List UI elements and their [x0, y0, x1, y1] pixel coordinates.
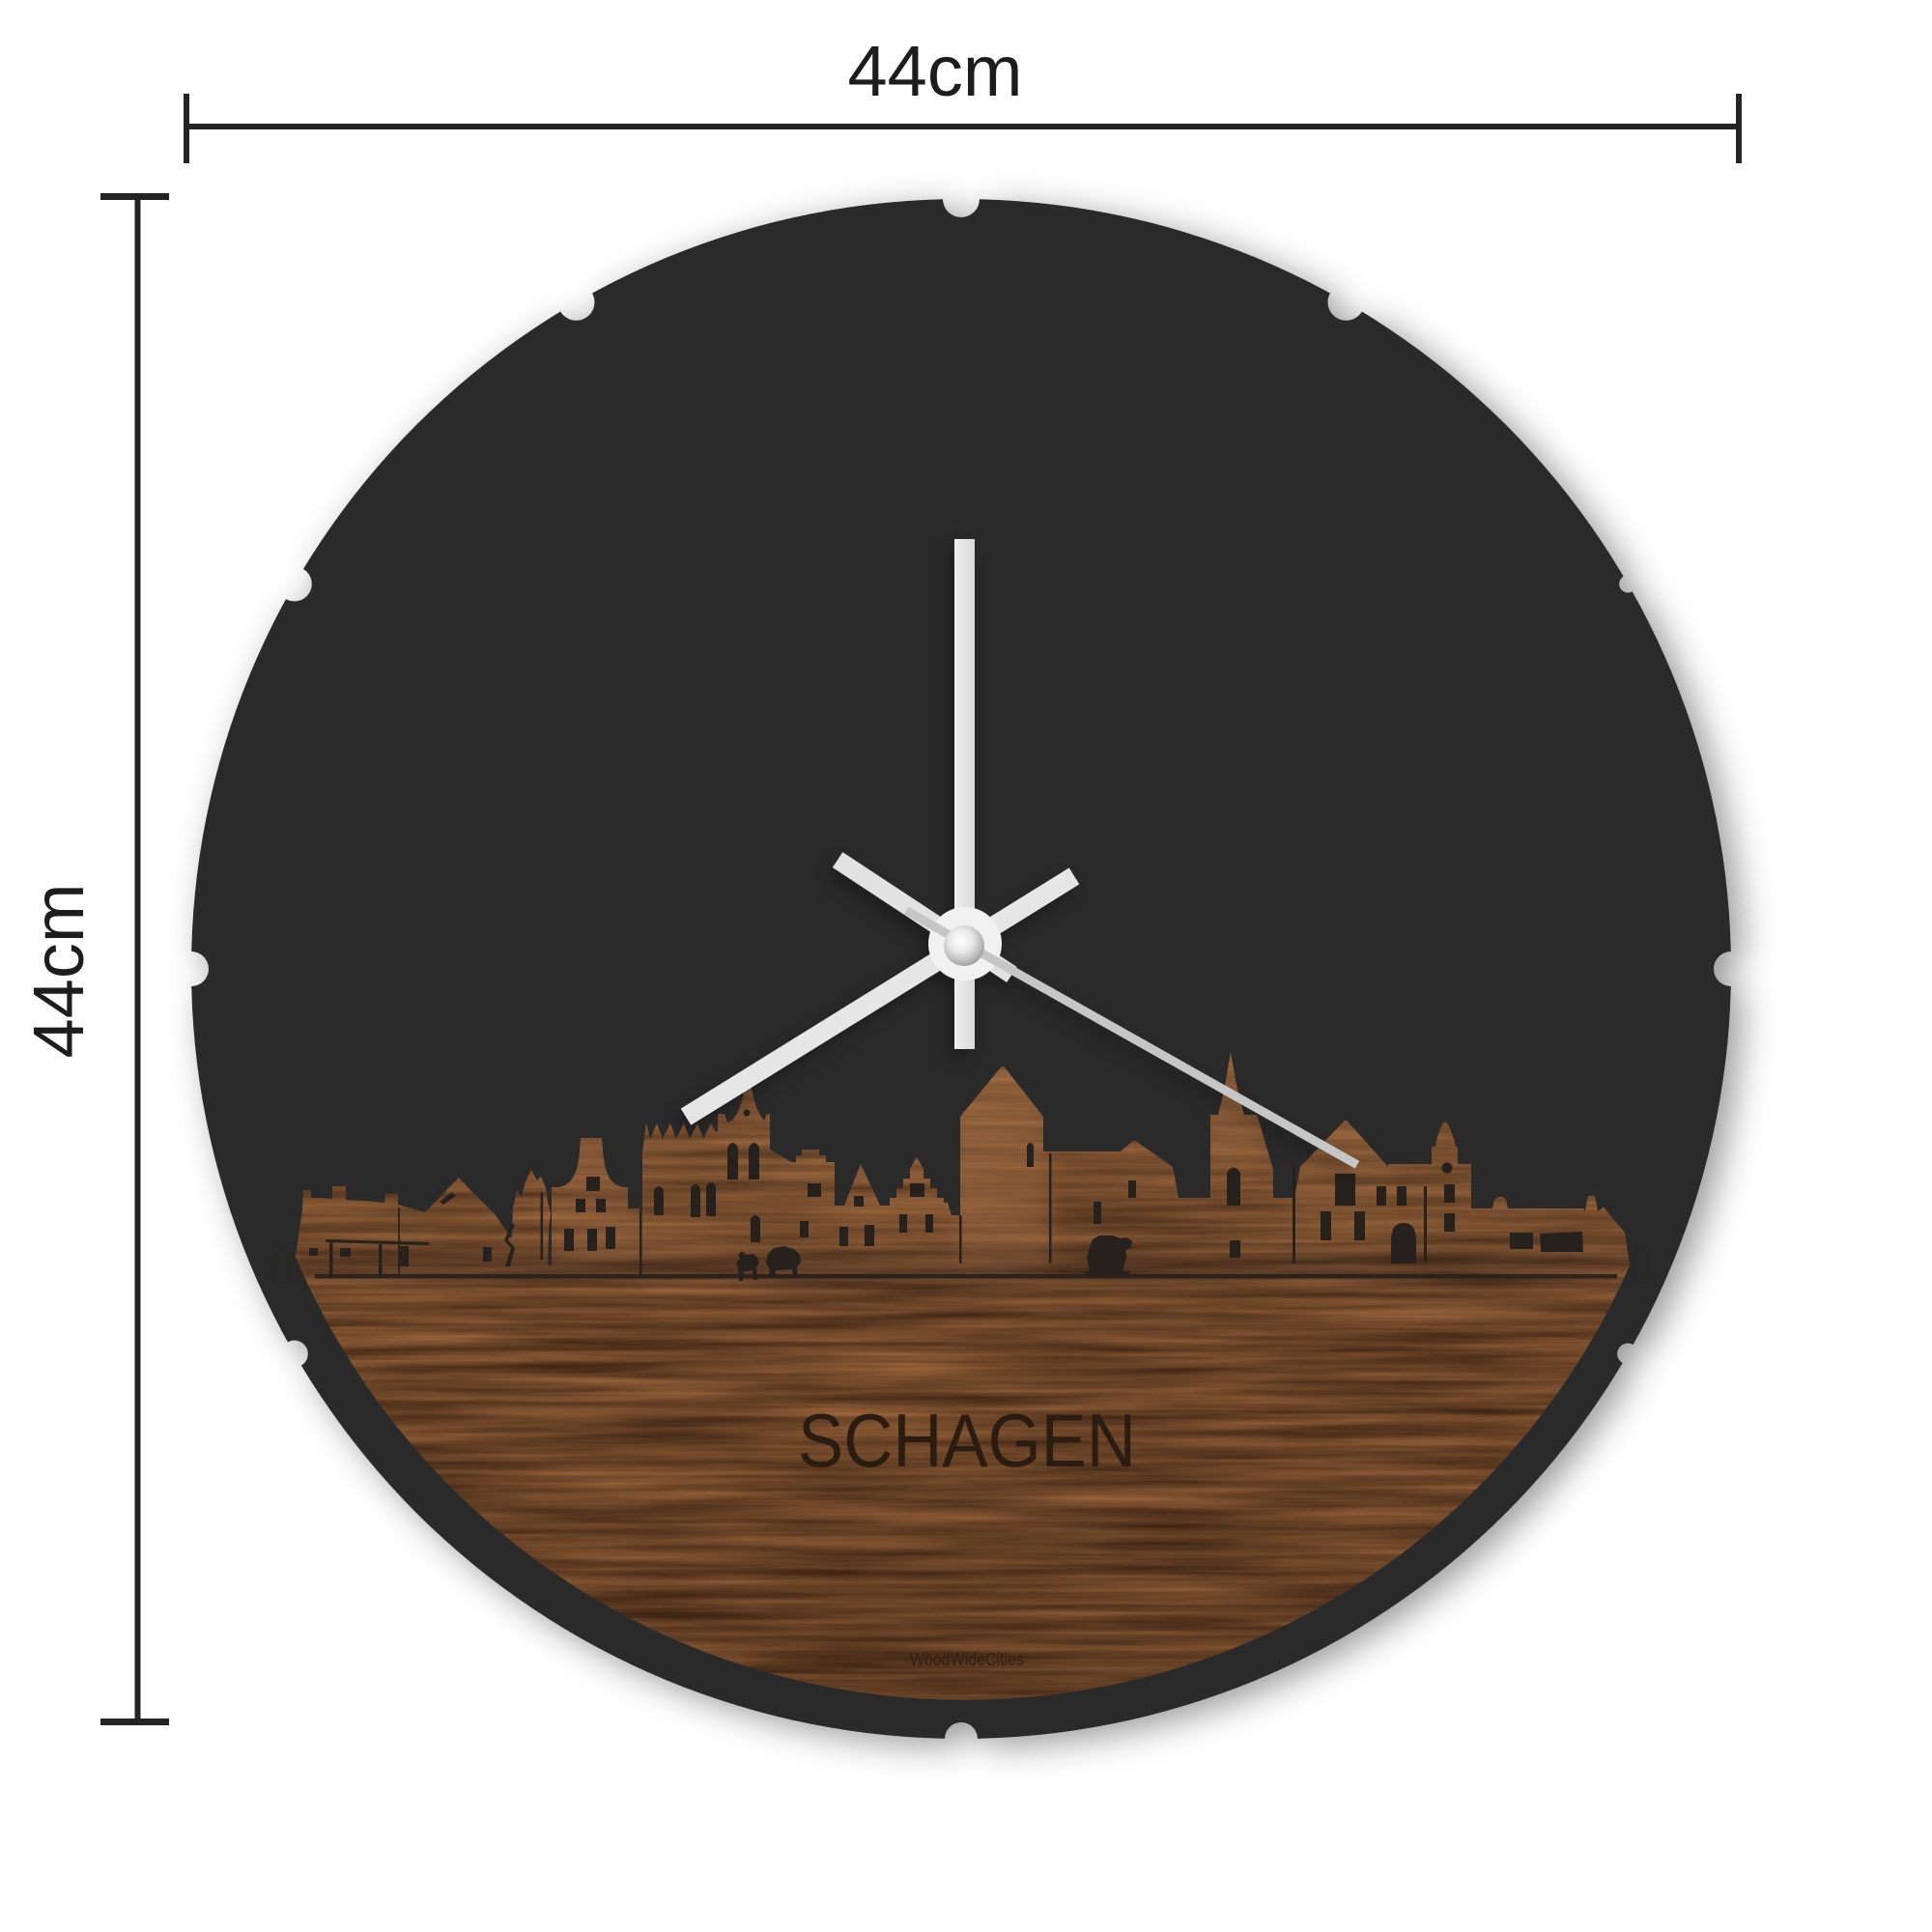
svg-text:44cm: 44cm: [18, 884, 99, 1059]
svg-text:44cm: 44cm: [848, 31, 1023, 111]
svg-text:WoodWideCities: WoodWideCities: [910, 1649, 1024, 1669]
svg-text:SCHAGEN: SCHAGEN: [798, 1398, 1136, 1483]
